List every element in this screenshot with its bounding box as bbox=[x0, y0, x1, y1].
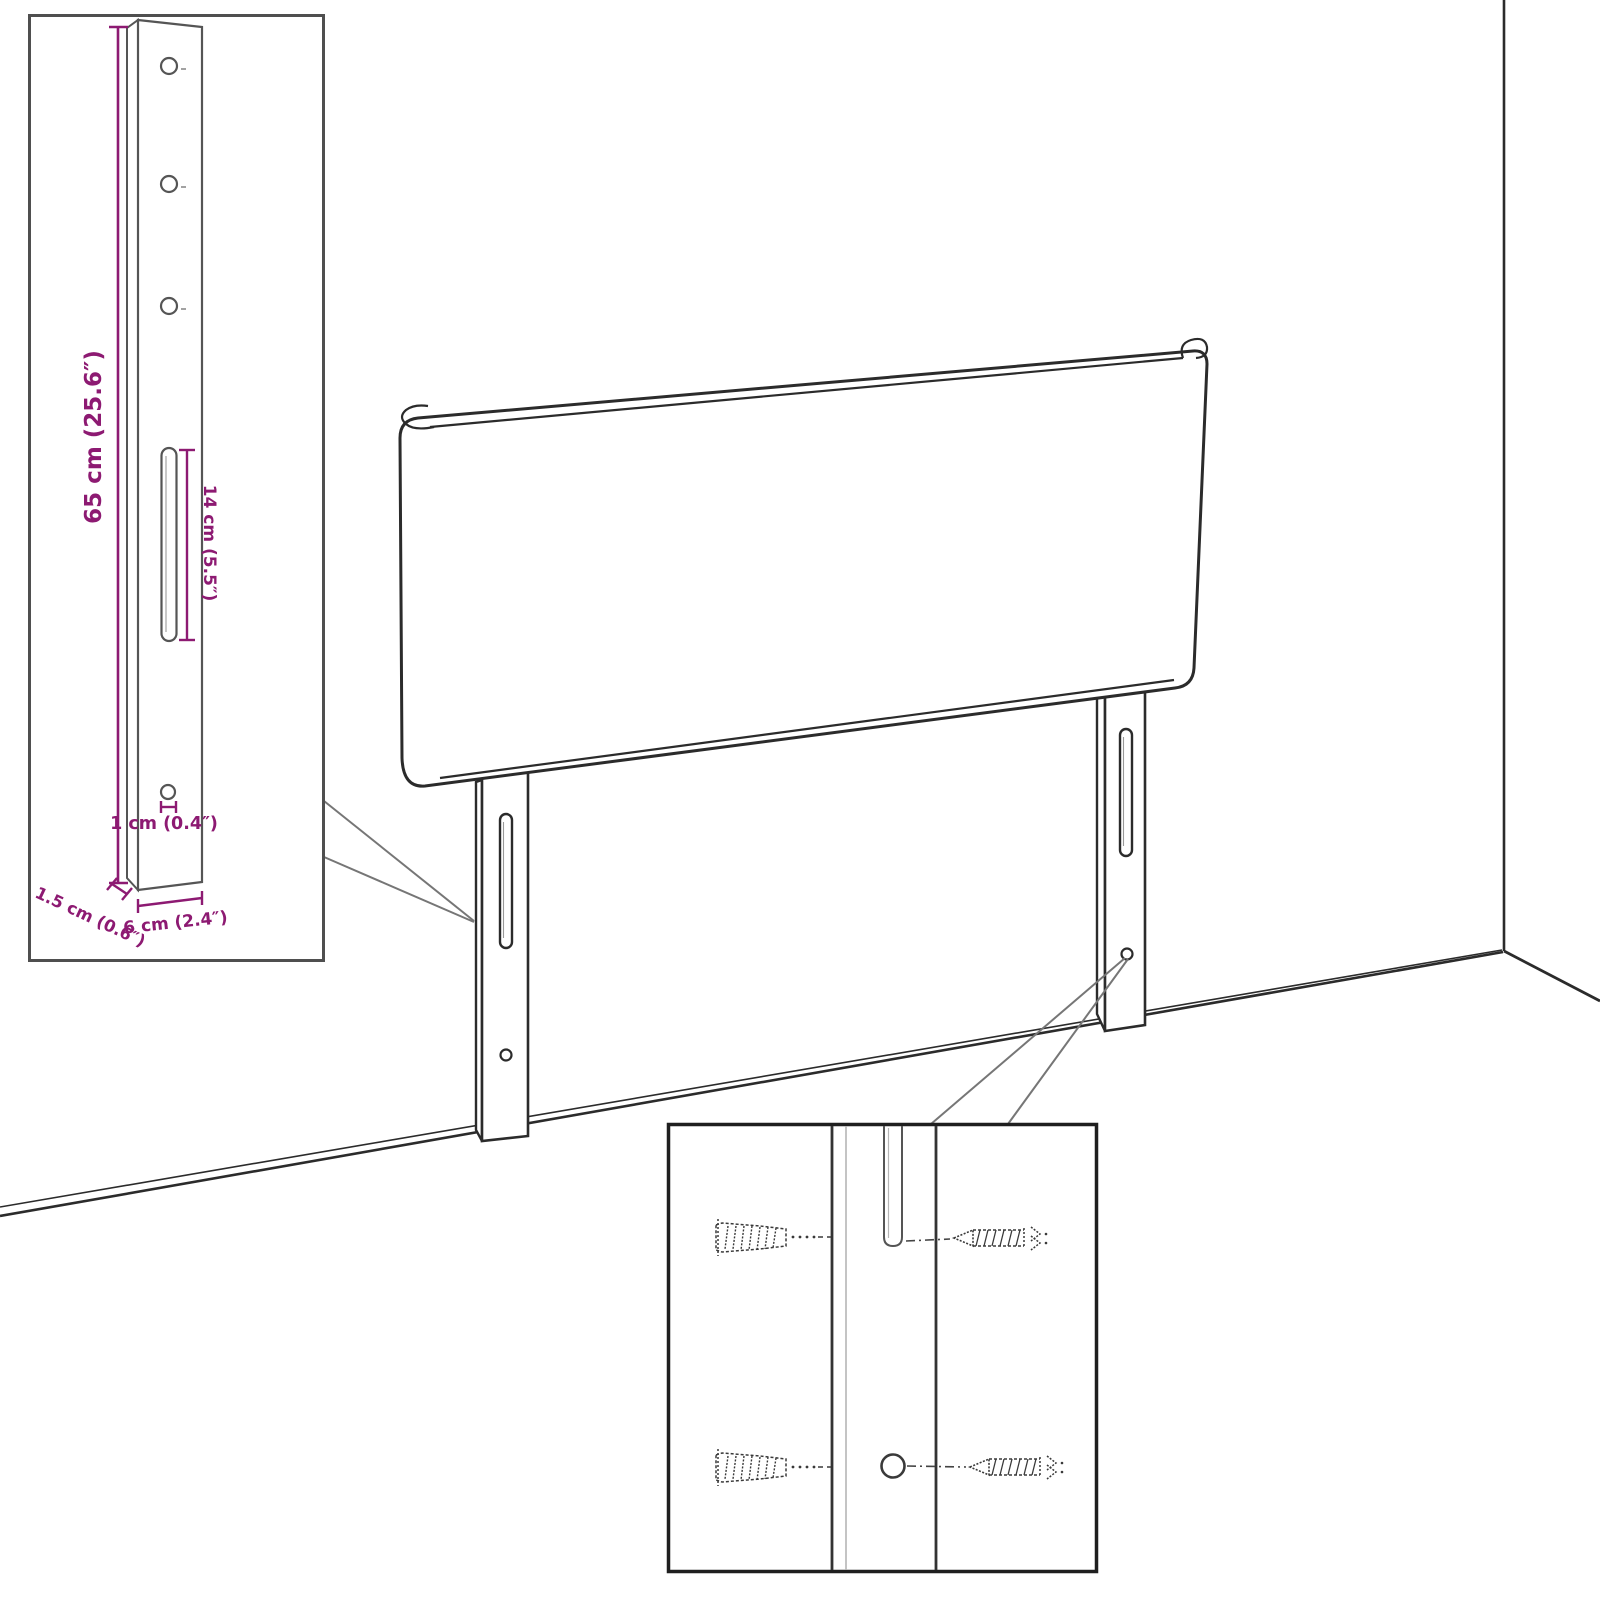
callout-line bbox=[931, 958, 1125, 1124]
leg-dimension-inset: 65 cm (25.6″) 14 cm (5.5″) 1 cm (0.4″) 6… bbox=[30, 16, 324, 961]
mounting-hardware-inset bbox=[669, 1125, 1097, 1572]
dimension-label-hole: 1 cm (0.4″) bbox=[110, 814, 218, 834]
callout-line bbox=[324, 857, 474, 922]
callout-lines-left-inset bbox=[324, 801, 474, 922]
assembly-diagram: 65 cm (25.6″) 14 cm (5.5″) 1 cm (0.4″) 6… bbox=[0, 0, 1600, 1600]
callout-line bbox=[324, 801, 474, 921]
dimension-label-slot: 14 cm (5.5″) bbox=[199, 485, 219, 602]
floor-wall-junction-right bbox=[1504, 951, 1600, 1001]
left-leg-front-face bbox=[482, 741, 528, 1141]
diagram-canvas: 65 cm (25.6″) 14 cm (5.5″) 1 cm (0.4″) 6… bbox=[0, 0, 1600, 1600]
right-leg-front-face bbox=[1105, 656, 1145, 1031]
headboard-panel bbox=[400, 351, 1207, 786]
detail-inset-box bbox=[669, 1125, 1097, 1572]
left-mounting-leg bbox=[476, 741, 528, 1141]
dimension-label-height: 65 cm (25.6″) bbox=[81, 350, 107, 524]
headboard bbox=[400, 339, 1207, 786]
